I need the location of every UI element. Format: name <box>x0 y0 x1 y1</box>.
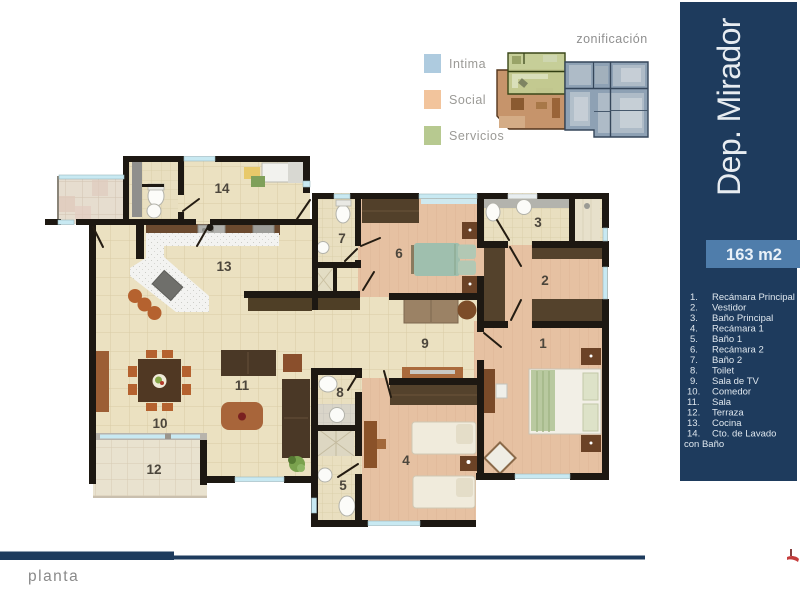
svg-text:zonificación: zonificación <box>576 32 647 46</box>
svg-text:1.: 1. <box>690 292 698 303</box>
svg-text:5.: 5. <box>690 334 698 345</box>
svg-text:Recámara 1: Recámara 1 <box>712 324 764 335</box>
svg-text:5: 5 <box>339 478 347 493</box>
svg-text:Baño 1: Baño 1 <box>712 334 742 345</box>
svg-text:Baño Principal: Baño Principal <box>712 313 773 324</box>
svg-text:Dep. Mirador: Dep. Mirador <box>711 17 747 196</box>
svg-text:7: 7 <box>338 231 346 246</box>
svg-text:Cocina: Cocina <box>712 418 742 429</box>
svg-text:Sala de TV: Sala de TV <box>712 376 759 387</box>
svg-text:10: 10 <box>152 416 167 431</box>
svg-text:12: 12 <box>146 462 161 477</box>
svg-text:2.: 2. <box>690 303 698 314</box>
svg-text:1: 1 <box>539 336 547 351</box>
svg-text:Sala: Sala <box>712 397 732 408</box>
svg-text:8: 8 <box>336 385 344 400</box>
svg-text:11.: 11. <box>687 397 700 408</box>
svg-text:163 m2: 163 m2 <box>726 246 782 264</box>
svg-text:4: 4 <box>402 453 410 468</box>
svg-text:Cto. de Lavado: Cto. de Lavado <box>712 429 776 440</box>
svg-text:14.: 14. <box>687 429 700 440</box>
svg-text:Baño 2: Baño 2 <box>712 355 742 366</box>
svg-text:Servicios: Servicios <box>449 129 504 143</box>
svg-text:2: 2 <box>541 273 549 288</box>
svg-text:8.: 8. <box>690 366 698 377</box>
svg-text:Recámara 2: Recámara 2 <box>712 345 764 356</box>
svg-text:12.: 12. <box>687 408 700 419</box>
svg-text:14: 14 <box>214 181 230 196</box>
svg-text:9.: 9. <box>690 376 698 387</box>
svg-text:7.: 7. <box>690 355 698 366</box>
svg-text:11: 11 <box>235 378 250 393</box>
svg-text:con Baño: con Baño <box>684 439 724 450</box>
svg-text:10.: 10. <box>687 387 700 398</box>
svg-text:Toilet: Toilet <box>712 366 735 377</box>
svg-text:4.: 4. <box>690 324 698 335</box>
svg-text:Vestidor: Vestidor <box>712 303 746 314</box>
svg-text:Intima: Intima <box>449 57 486 71</box>
svg-text:6: 6 <box>395 246 403 261</box>
svg-text:Recámara Principal: Recámara Principal <box>712 292 795 303</box>
svg-text:13.: 13. <box>687 418 700 429</box>
svg-text:6.: 6. <box>690 345 698 356</box>
svg-text:Social: Social <box>449 93 486 107</box>
svg-text:13: 13 <box>216 259 232 274</box>
svg-text:3: 3 <box>534 215 542 230</box>
svg-text:Comedor: Comedor <box>712 387 751 398</box>
svg-text:3.: 3. <box>690 313 698 324</box>
svg-text:9: 9 <box>421 336 429 351</box>
svg-text:Terraza: Terraza <box>712 408 744 419</box>
svg-text:planta: planta <box>28 568 79 585</box>
